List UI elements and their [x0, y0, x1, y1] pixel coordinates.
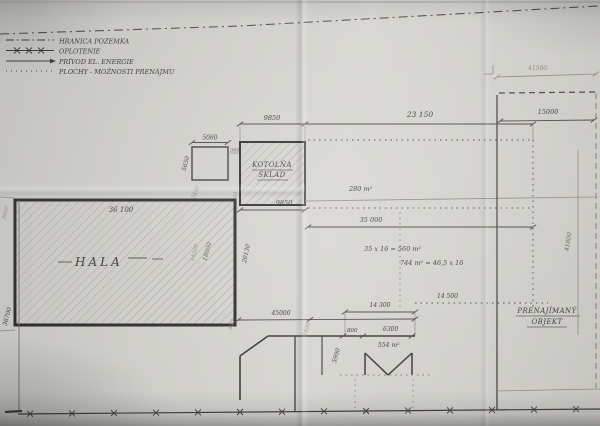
area-560-formula: 35 x 16 = 560 m² [364, 245, 422, 253]
dim-9850-bottom: 9850 [276, 199, 293, 207]
rented-object-label-line1: PRENAJÍMANÝ [516, 306, 577, 315]
dim-3400: 3400 [191, 185, 202, 201]
legend: HRANICA POZEMKA OPLOTENIE PRÍVOD EL. ENE… [6, 38, 175, 77]
dim-14500: 14 500 [437, 293, 458, 300]
site-plan-photo: HRANICA POZEMKA OPLOTENIE PRÍVOD EL. ENE… [0, 0, 600, 426]
plot-boundary-line [0, 6, 598, 34]
dim-9850-top: 9850 [264, 114, 281, 122]
dim-14300: 14 300 [342, 302, 418, 314]
dim-45000-text: 45000 [270, 310, 290, 317]
hala-label: HALA [74, 255, 123, 269]
legend-fence-symbol [6, 48, 54, 54]
fence-line [5, 406, 600, 417]
dim-6300: 6300 [383, 326, 398, 333]
dim-15000: 15000 [538, 108, 559, 116]
dim-41500-group [494, 72, 599, 80]
dim-41500: 41500 [527, 65, 547, 72]
dim-41800: 41800 [563, 232, 573, 253]
dim-3600-left: 3600 [1, 205, 11, 221]
area-280: 280 m² [348, 185, 373, 193]
kotolna-label-line2: SKLAD [258, 171, 285, 179]
dim-20130: 20130 [241, 243, 252, 264]
dim-square-width: 5060 [189, 135, 231, 145]
dim-36100: 36 100 [109, 206, 134, 214]
truss-m-shape [365, 353, 412, 375]
legend-arrow-symbol [6, 59, 56, 64]
kotolna-building: 9850 23 150 KOTOLŇA SKLAD 9850 240 [231, 110, 536, 212]
small-square-building: 5060 5650 3400 360 [181, 135, 241, 201]
dim-35000: 35 000 [305, 216, 536, 229]
rented-object-building: 41500 15000 PRENAJÍMANÝ OBJEKT 41800 [484, 65, 600, 410]
dim-15000-group: 15000 [497, 108, 597, 123]
site-plan-drawing: HRANICA POZEMKA OPLOTENIE PRÍVOD EL. ENE… [0, 0, 600, 426]
rented-object-label-line2: OBJEKT [531, 318, 563, 326]
dim-23150: 23 150 [406, 110, 433, 119]
dim-span-23150: 23 150 [305, 110, 536, 126]
area-744-formula: 744 m² = 46,5 x 16 [400, 259, 463, 267]
dim-5900: 5900 [331, 347, 342, 364]
dim-kotolna-width-top: 9850 [237, 114, 308, 126]
legend-item-hranica-pozemka: HRANICA POZEMKA [58, 38, 129, 46]
dim-5650: 5650 [181, 155, 192, 172]
legend-item-oplotenie: OPLOTENIE [59, 48, 101, 56]
annex-structures: 45000 850 2400 800 6300 554 m² 5900 [228, 310, 430, 411]
dim-14300-text: 14 300 [370, 302, 391, 309]
dim-800: 800 [347, 328, 358, 334]
kotolna-label-line1: KOTOLŇA [251, 160, 292, 169]
legend-item-privod: PRÍVOD EL. ENERGIE [58, 57, 134, 66]
legend-item-plochy: PLOCHY - MOŽNOSTI PRENÁJMU [58, 67, 175, 76]
area-554: 554 m² [378, 342, 400, 349]
dim-360: 360 [230, 148, 240, 154]
hala-building: 36 100 HALA 14500 18000 20130 3600 36700 [0, 197, 252, 411]
dim-5060: 5060 [202, 135, 217, 142]
dim-35000-text: 35 000 [360, 216, 383, 224]
dim-36700-left: 36700 [2, 306, 14, 326]
